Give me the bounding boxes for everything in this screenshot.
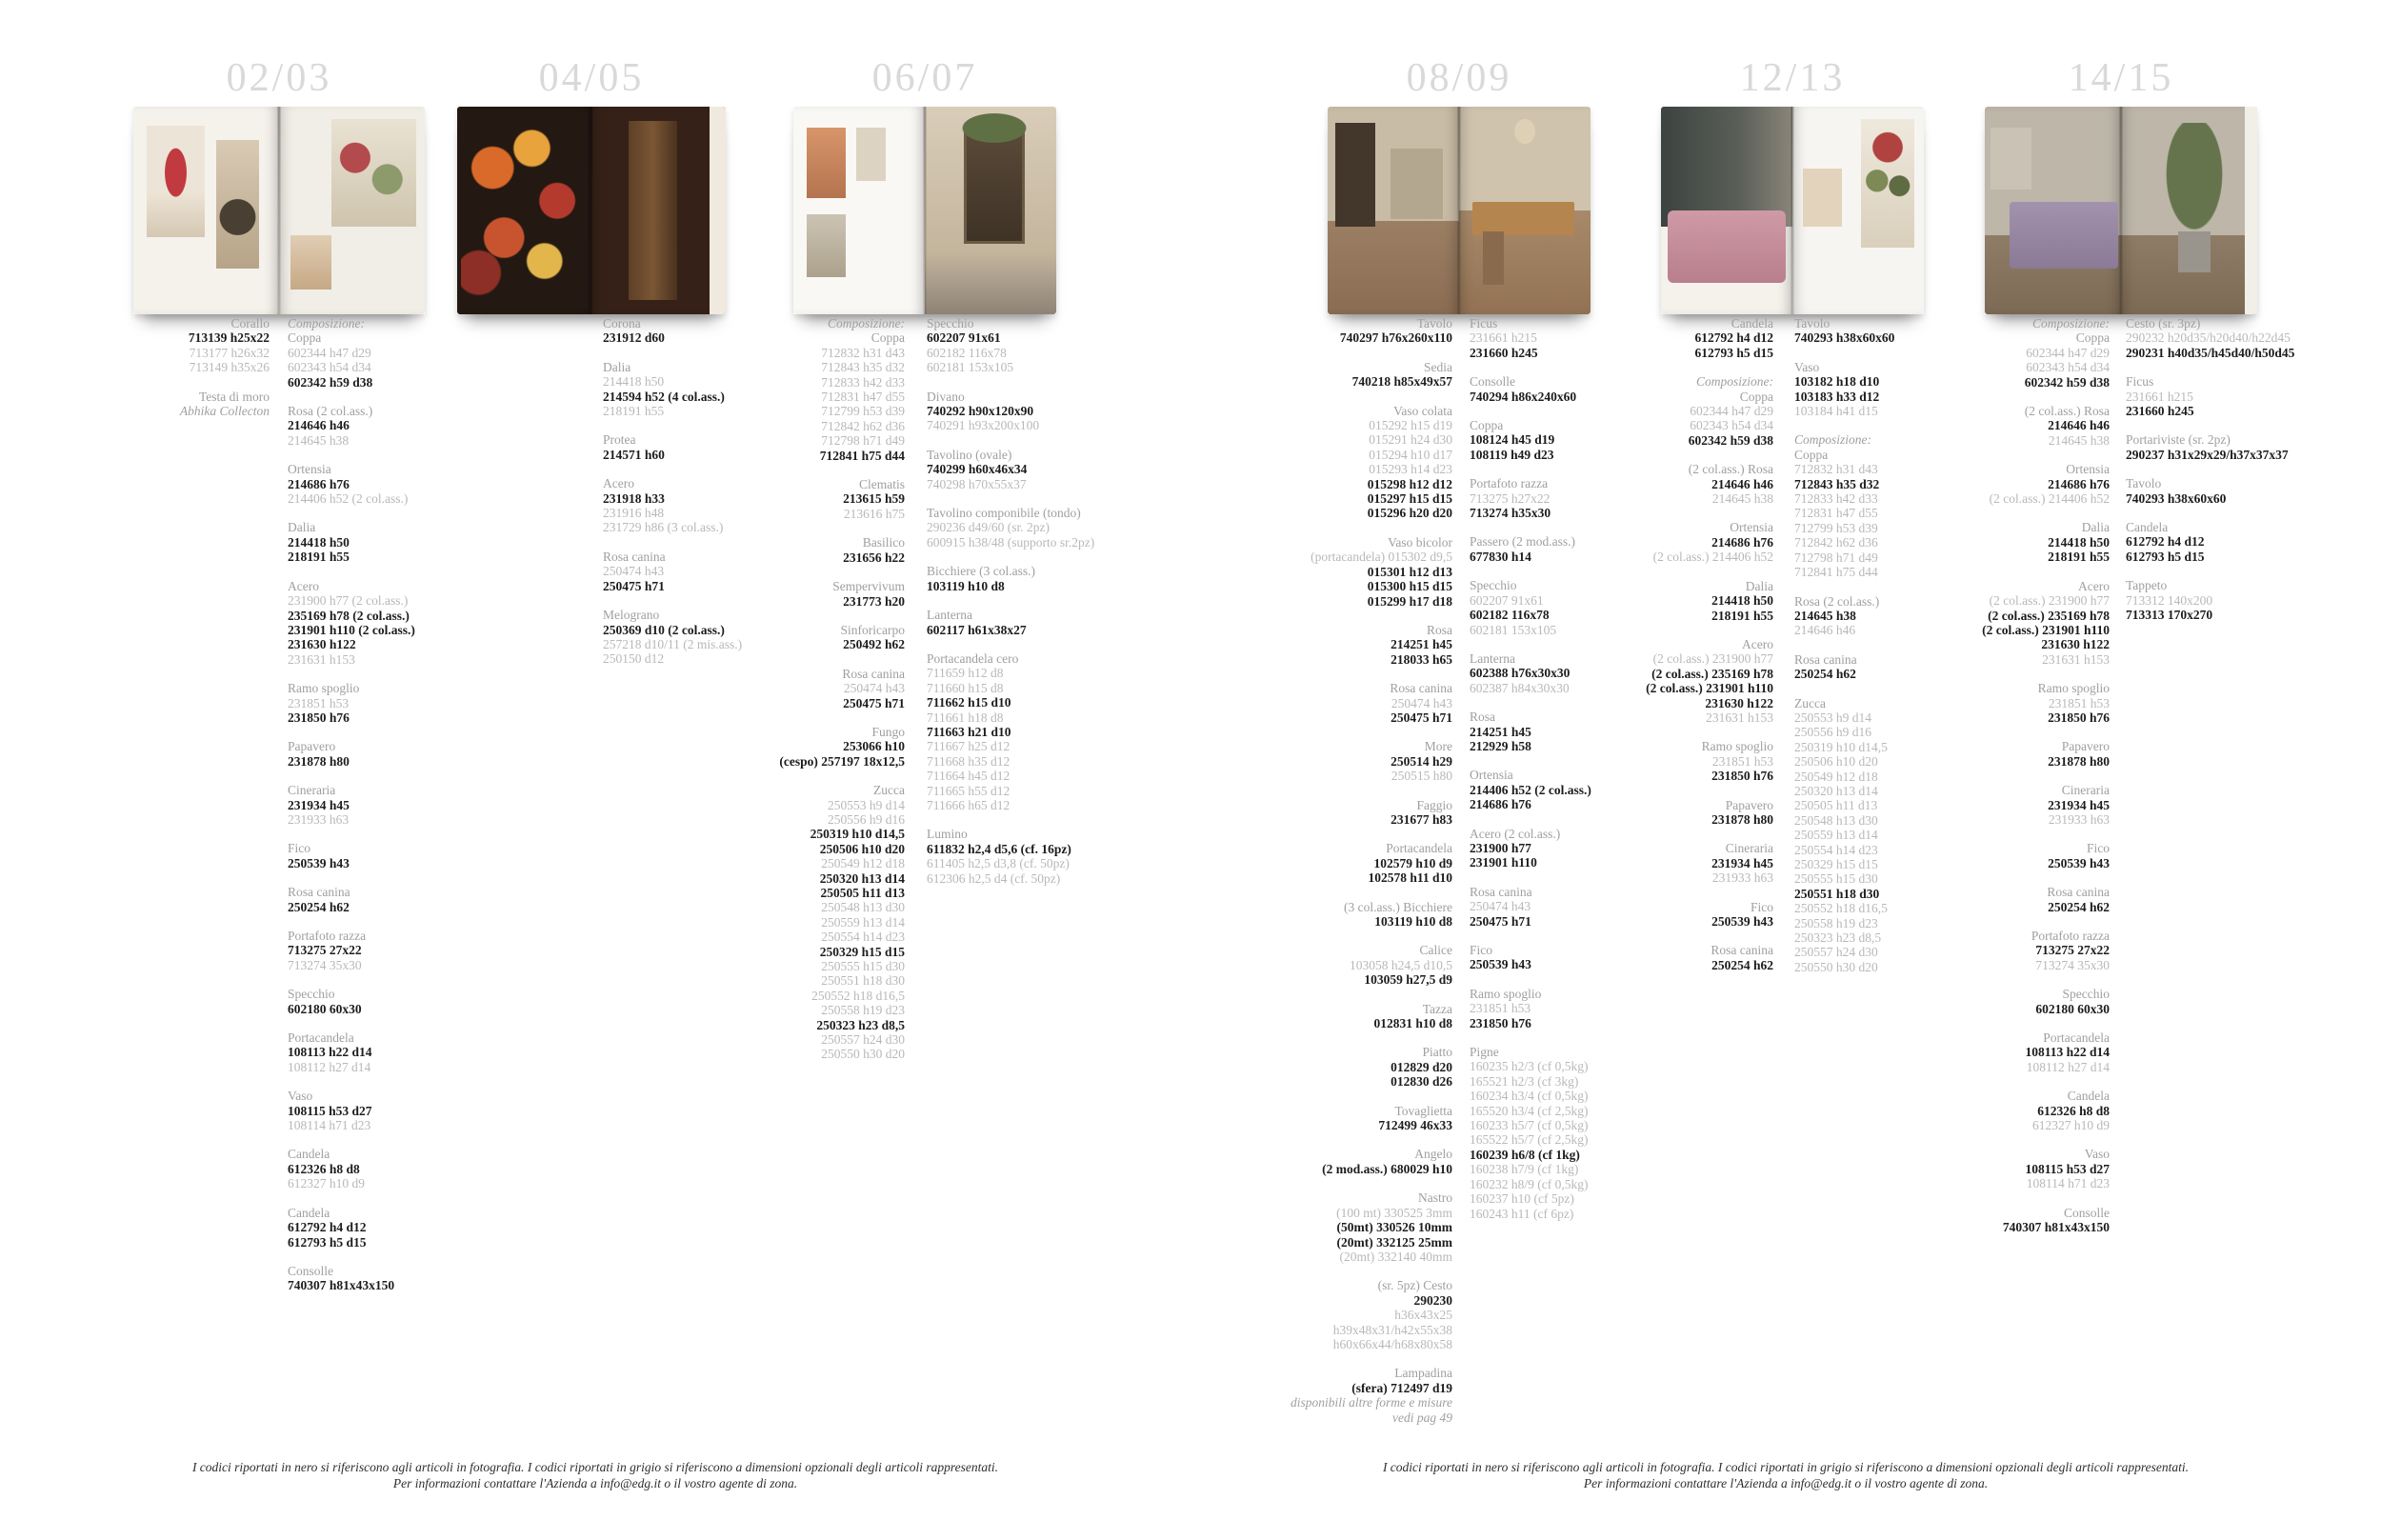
product-variant-line: 602344 h47 d29	[1932, 346, 2110, 360]
product-group: Dalia214418 h50218191 h55	[288, 520, 459, 564]
product-name-line: Fico	[1596, 900, 1773, 914]
product-variant-line: 711661 h18 d8	[927, 710, 1134, 725]
product-group: Sempervivum231773 h20	[724, 579, 905, 609]
product-variant-line: 250558 h19 d23	[724, 1003, 905, 1017]
product-code-line: 214686 h76	[1932, 477, 2110, 491]
product-code-line: 740292 h90x120x90	[927, 404, 1134, 418]
product-code-line: 250254 h62	[288, 900, 459, 914]
product-group: Consolle740307 h81x43x150	[288, 1264, 459, 1293]
product-name-line: Acero	[288, 579, 459, 593]
product-name-line: Composizione:	[1596, 374, 1773, 389]
product-code-line: 713313 170x270	[2126, 608, 2343, 622]
product-group: Divano740292 h90x120x90740291 h93x200x10…	[927, 390, 1134, 433]
thumbnail-photo	[807, 214, 846, 276]
product-variant-line: (2 col.ass.) 231900 h77	[1596, 651, 1773, 666]
product-group: Candela612326 h8 d8612327 h10 d9	[1932, 1089, 2110, 1132]
product-group: Lampadina(sfera) 712497 d19disponibili a…	[1274, 1366, 1452, 1425]
product-variant-line: 160235 h2/3 (cf 0,5kg)	[1470, 1059, 1668, 1073]
catalog-index-page: 02/03Corallo713139 h25x22713177 h26x3271…	[0, 0, 2381, 1540]
product-group: Papavero231878 h80	[288, 739, 459, 769]
product-variant-line: 712842 h62 d36	[724, 419, 905, 433]
product-name-line: Portacandela	[1274, 841, 1452, 855]
product-name-line: Calice	[1274, 943, 1452, 957]
product-variant-line: 250515 h80	[1274, 769, 1452, 783]
product-code-line: 740307 h81x43x150	[1932, 1220, 2110, 1234]
product-variant-line: 712832 h31 d43	[724, 346, 905, 360]
product-name-line: Specchio	[288, 987, 459, 1001]
product-code-line: 250329 h15 d15	[724, 945, 905, 959]
product-column: Corallo713139 h25x22713177 h26x32713149 …	[108, 316, 270, 432]
product-variant-line: 015292 h15 d19	[1274, 418, 1452, 432]
product-group: Ramo spoglio231851 h53231850 h76	[1932, 681, 2110, 725]
product-variant-line: 711665 h55 d12	[927, 784, 1134, 798]
product-name-line: Portafoto razza	[288, 929, 459, 943]
product-column: Cesto (sr. 3pz)290232 h20d35/h20d40/h22d…	[2126, 316, 2343, 637]
product-group: Vaso108115 h53 d27108114 h71 d23	[288, 1089, 459, 1132]
product-code-line: (20mt) 332125 25mm	[1274, 1235, 1452, 1250]
product-variant-line: 712843 h35 d32	[724, 360, 905, 374]
product-name-line: Dalia	[288, 520, 459, 534]
product-column: Candela612792 h4 d12612793 h5 d15Composi…	[1596, 316, 1773, 987]
product-variant-line: 602343 h54 d34	[1932, 360, 2110, 374]
product-name-line: Pigne	[1470, 1045, 1668, 1059]
product-variant-line: (portacandela) 015302 d9,5	[1274, 550, 1452, 564]
product-code-line: 290237 h31x29x29/h37x37x37	[2126, 448, 2343, 462]
product-variant-line: 612306 h2,5 d4 (cf. 50pz)	[927, 871, 1134, 886]
product-variant-line: 231933 h63	[1596, 870, 1773, 885]
product-group: Angelo(2 mod.ass.) 680029 h10	[1274, 1147, 1452, 1176]
product-group: Papavero231878 h80	[1932, 739, 2110, 769]
product-group: Rosa (2 col.ass.)214646 h46214645 h38	[288, 404, 459, 448]
product-code-line: 108115 h53 d27	[288, 1104, 459, 1118]
product-variant-line: 250550 h30 d20	[724, 1047, 905, 1061]
product-group: Calice103058 h24,5 d10,5103059 h27,5 d9	[1274, 943, 1452, 987]
product-group: Specchio602180 60x30	[288, 987, 459, 1016]
product-code-line: 103119 h10 d8	[927, 579, 1134, 593]
product-group: Lanterna602117 h61x38x27	[927, 608, 1134, 637]
product-name-line: Rosa canina	[1274, 681, 1452, 695]
product-group: Dalia214418 h50218191 h55	[1932, 520, 2110, 564]
product-code-line: 250539 h43	[1932, 856, 2110, 870]
product-column: Composizione:Coppa602344 h47 d29602343 h…	[288, 316, 459, 1308]
product-name-line: disponibili altre forme e misure	[1274, 1395, 1452, 1410]
product-code-line: 231677 h83	[1274, 812, 1452, 827]
product-name-line: Composizione:	[724, 316, 905, 330]
product-code-line: 250475 h71	[1274, 710, 1452, 725]
product-group: Ficus231661 h215231660 h245	[2126, 374, 2343, 418]
product-group: Tavolino (ovale)740299 h60x46x34740298 h…	[927, 448, 1134, 491]
product-code-line: 602117 h61x38x27	[927, 623, 1134, 637]
product-name-line: Ramo spoglio	[1470, 987, 1668, 1001]
product-name-line: Lampadina	[1274, 1366, 1452, 1380]
product-code-line: 231878 h80	[1932, 754, 2110, 769]
product-code-line: 214418 h50	[1596, 593, 1773, 608]
product-group: Clematis213615 h59213616 h75	[724, 477, 905, 521]
product-group: (2 col.ass.) Rosa214646 h46214645 h38	[1596, 462, 1773, 506]
product-group: Sinforicarpo250492 h62	[724, 623, 905, 652]
thumbnail-photo	[290, 235, 331, 290]
product-group: Rosa canina250254 h62	[1932, 885, 2110, 914]
product-code-line: 250514 h29	[1274, 754, 1452, 769]
product-group: Corallo713139 h25x22713177 h26x32713149 …	[108, 316, 270, 375]
product-code-line: (cespo) 257197 18x12,5	[724, 754, 905, 769]
product-group: Piatto012829 d20012830 d26	[1274, 1045, 1452, 1089]
product-code-line: 231850 h76	[1470, 1016, 1668, 1030]
thumbnail-photo	[2159, 123, 2230, 243]
product-group: Faggio231677 h83	[1274, 798, 1452, 828]
product-code-line: (2 col.ass.) 235169 h78	[1596, 667, 1773, 681]
product-name-line: Fungo	[724, 725, 905, 739]
product-variant-line: (100 mt) 330525 3mm	[1274, 1206, 1452, 1220]
product-name-line: Rosa canina	[1932, 885, 2110, 899]
thumbnail-photo	[1668, 210, 1786, 283]
product-name-line: Tovaglietta	[1274, 1104, 1452, 1118]
product-code-line: 290231 h40d35/h45d40/h50d45	[2126, 346, 2343, 360]
product-name-line: Rosa canina	[288, 885, 459, 899]
product-name-line: Vaso	[1932, 1147, 2110, 1161]
product-variant-line: 250559 h13 d14	[724, 915, 905, 930]
product-group: Rosa canina250474 h43250475 h71	[724, 667, 905, 710]
product-code-line: 015301 h12 d13	[1274, 565, 1452, 579]
product-code-line: 214646 h46	[288, 418, 459, 432]
thumbnail-photo	[461, 113, 588, 309]
product-code-line: 012831 h10 d8	[1274, 1016, 1452, 1030]
product-group: Candela612792 h4 d12612793 h5 d15	[1596, 316, 1773, 360]
product-group: Cineraria231934 h45231933 h63	[1932, 783, 2110, 827]
product-code-line: 103119 h10 d8	[1274, 914, 1452, 929]
product-group: (sr. 5pz) Cesto290230h36x43x25h39x48x31/…	[1274, 1278, 1452, 1351]
product-group: Candela612792 h4 d12612793 h5 d15	[2126, 520, 2343, 564]
product-group: Candela612326 h8 d8612327 h10 d9	[288, 1147, 459, 1190]
product-variant-line: 015294 h10 d17	[1274, 448, 1452, 462]
product-code-line: 231850 h76	[1932, 710, 2110, 725]
product-variant-line: 165521 h2/3 (cf 3kg)	[1470, 1074, 1668, 1089]
product-variant-line: 160238 h7/9 (cf 1kg)	[1470, 1162, 1668, 1176]
product-name-line: Portacandela	[288, 1030, 459, 1045]
product-code-line: (2 col.ass.) 235169 h78	[1932, 609, 2110, 623]
product-code-line: (2 col.ass.) 231901 h110	[1932, 623, 2110, 637]
product-name-line: Candela	[2126, 520, 2343, 534]
product-name-line: Acero	[1596, 637, 1773, 651]
product-code-line: 231934 h45	[1932, 798, 2110, 812]
spread-page-numbers: 02/03	[133, 55, 425, 101]
product-code-line: 231630 h122	[288, 637, 459, 651]
thumbnail-photo	[1391, 149, 1443, 219]
product-name-line: Acero	[1932, 579, 2110, 593]
product-name-line: Candela	[288, 1206, 459, 1220]
product-name-line: Consolle	[1932, 1206, 2110, 1220]
thumbnail-page	[1985, 107, 2121, 314]
product-group: Ortensia214686 h76(2 col.ass.) 214406 h5…	[1596, 520, 1773, 564]
product-variant-line: 231933 h63	[1932, 812, 2110, 827]
product-variant-line: 103058 h24,5 d10,5	[1274, 958, 1452, 972]
product-variant-line: 712833 h42 d33	[724, 375, 905, 390]
product-name-line: Consolle	[288, 1264, 459, 1278]
thumbnail-photo	[710, 107, 726, 314]
product-code-line: 711662 h15 d10	[927, 695, 1134, 710]
product-name-line: Candela	[288, 1147, 459, 1161]
spread-thumbnail	[457, 107, 726, 314]
product-code-line: 612792 h4 d12	[288, 1220, 459, 1234]
product-group: Ramo spoglio231851 h53231850 h76	[288, 681, 459, 725]
product-variant-line: 231851 h53	[288, 696, 459, 710]
thumbnail-photo	[1803, 169, 1842, 227]
product-name-line: Corallo	[108, 316, 270, 330]
product-code-line: 214418 h50	[288, 535, 459, 550]
product-name-line: Rosa canina	[724, 667, 905, 681]
product-group: Acero231900 h77 (2 col.ass.)235169 h78 (…	[288, 579, 459, 667]
product-name-line: Portariviste (sr. 2pz)	[2126, 432, 2343, 447]
product-variant-line: 250552 h18 d16,5	[724, 989, 905, 1003]
product-variant-line: 231631 h153	[1596, 710, 1773, 725]
product-group: (3 col.ass.) Bicchiere103119 h10 d8	[1274, 900, 1452, 930]
product-code-line: 108115 h53 d27	[1932, 1162, 2110, 1176]
product-code-line: 160239 h6/8 (cf 1kg)	[1470, 1148, 1668, 1162]
product-variant-line: 250549 h12 d18	[724, 856, 905, 870]
footer-contact: Per informazioni contattare l'Azienda a …	[1338, 1475, 2233, 1491]
footer-legend: I codici riportati in nero si riferiscon…	[148, 1459, 1043, 1475]
thumbnail-photo	[147, 126, 205, 238]
product-column: Tavolo740297 h76x260x110Sedia740218 h85x…	[1274, 316, 1452, 1439]
product-group: Rosa canina250474 h43250475 h71	[1274, 681, 1452, 725]
product-code-line: 214646 h46	[1932, 418, 2110, 432]
product-variant-line: 108114 h71 d23	[1932, 1176, 2110, 1190]
product-code-line: 713275 27x22	[288, 943, 459, 957]
product-name-line: Angelo	[1274, 1147, 1452, 1161]
product-variant-line: 250555 h15 d30	[724, 959, 905, 973]
product-group: Portacandela108113 h22 d14108112 h27 d14	[1932, 1030, 2110, 1074]
product-name-line: Composizione:	[1932, 316, 2110, 330]
product-group: Vaso colata015292 h15 d19015291 h24 d300…	[1274, 404, 1452, 521]
product-group: Vaso108115 h53 d27108114 h71 d23	[1932, 1147, 2110, 1190]
product-variant-line: 713274 35x30	[1932, 958, 2110, 972]
product-variant-line: 600915 h38/48 (supporto sr.2pz)	[927, 535, 1134, 550]
product-name-line: Specchio	[927, 316, 1134, 330]
product-code-line: 611832 h2,4 d5,6 (cf. 16pz)	[927, 842, 1134, 856]
product-code-line: 231934 h45	[288, 798, 459, 812]
product-name-line: Specchio	[1932, 987, 2110, 1001]
product-variant-line: (2 col.ass.) 231900 h77	[1932, 593, 2110, 608]
product-variant-line: 250551 h18 d30	[724, 973, 905, 988]
footer-contact: Per informazioni contattare l'Azienda a …	[148, 1475, 1043, 1491]
product-name-line: Portafoto razza	[1932, 929, 2110, 943]
product-name-line: Tavolo	[2126, 476, 2343, 490]
product-group: Acero(2 col.ass.) 231900 h77(2 col.ass.)…	[1932, 579, 2110, 667]
product-code-line: 740218 h85x49x57	[1274, 374, 1452, 389]
product-group: Consolle740307 h81x43x150	[1932, 1206, 2110, 1235]
product-variant-line: 165520 h3/4 (cf 2,5kg)	[1470, 1104, 1668, 1118]
product-group: Composizione:Coppa602344 h47 d29602343 h…	[1932, 316, 2110, 390]
thumbnail-photo	[1861, 119, 1915, 248]
product-variant-line: 250548 h13 d30	[724, 900, 905, 914]
product-group: Composizione:Coppa602344 h47 d29602343 h…	[288, 316, 459, 390]
product-code-line: 713139 h25x22	[108, 330, 270, 345]
product-name-line: Sedia	[1274, 360, 1452, 374]
product-variant-line: 108114 h71 d23	[288, 1118, 459, 1132]
product-group: Cesto (sr. 3pz)290232 h20d35/h20d40/h22d…	[2126, 316, 2343, 360]
product-variant-line: 612327 h10 d9	[1932, 1118, 2110, 1132]
product-code-line: 231630 h122	[1932, 637, 2110, 651]
product-group: More250514 h29250515 h80	[1274, 739, 1452, 783]
product-group: Rosa canina250254 h62	[288, 885, 459, 914]
product-group: Tavolino componibile (tondo)290236 d49/6…	[927, 506, 1134, 550]
product-code-line: 214418 h50	[1932, 535, 2110, 550]
product-group: Portariviste (sr. 2pz)290237 h31x29x29/h…	[2126, 432, 2343, 462]
product-name-line: Ficus	[2126, 374, 2343, 389]
product-code-line: 602342 h59 d38	[1932, 375, 2110, 390]
product-group: Tavolo740297 h76x260x110	[1274, 316, 1452, 346]
footer-legend: I codici riportati in nero si riferiscon…	[1338, 1459, 2233, 1475]
product-name-line: Rosa	[1274, 623, 1452, 637]
thumbnail-photo	[1991, 128, 2031, 190]
product-variant-line: (2 col.ass.) 214406 h52	[1932, 491, 2110, 506]
product-name-line: Sempervivum	[724, 579, 905, 593]
product-variant-line: 015293 h14 d23	[1274, 462, 1452, 476]
product-variant-line: 250557 h24 d30	[724, 1032, 905, 1047]
product-variant-line: 231661 h215	[2126, 390, 2343, 404]
product-variant-line: (2 col.ass.) 214406 h52	[1596, 550, 1773, 564]
spread-page-numbers: 12/13	[1661, 55, 1924, 101]
product-code-line: 231656 h22	[724, 550, 905, 565]
product-code-line: 214686 h76	[288, 477, 459, 491]
product-code-line: 250505 h11 d13	[724, 886, 905, 900]
product-code-line: 015298 h12 d12	[1274, 477, 1452, 491]
product-code-line: 740307 h81x43x150	[288, 1278, 459, 1292]
product-code-line: 250323 h23 d8,5	[724, 1018, 905, 1032]
product-variant-line: 160233 h5/7 (cf 0,5kg)	[1470, 1118, 1668, 1132]
product-variant-line: 602181 153x105	[927, 360, 1134, 374]
thumbnail-page	[457, 107, 591, 314]
product-variant-line: 602344 h47 d29	[1596, 404, 1773, 418]
product-code-line: 102578 h11 d10	[1274, 870, 1452, 885]
product-group: Zucca250553 h9 d14250556 h9 d16250319 h1…	[724, 783, 905, 1062]
product-code-line: 012829 d20	[1274, 1060, 1452, 1074]
product-variant-line: 160243 h11 (cf 6pz)	[1470, 1207, 1668, 1221]
product-group: Papavero231878 h80	[1596, 798, 1773, 828]
spread-thumbnail	[133, 107, 425, 314]
product-name-line: Coppa	[288, 330, 459, 345]
product-group: Ortensia214686 h76214406 h52 (2 col.ass.…	[288, 462, 459, 506]
product-code-line: 250475 h71	[724, 696, 905, 710]
product-group: Fico250539 h43	[1596, 900, 1773, 930]
product-group: Sedia740218 h85x49x57	[1274, 360, 1452, 390]
product-variant-line: h60x66x44/h68x80x58	[1274, 1337, 1452, 1351]
product-name-line: Vaso	[288, 1089, 459, 1103]
product-code-line: (sfera) 712497 d19	[1274, 1381, 1452, 1395]
product-code-line: (2 col.ass.) 231901 h110	[1596, 681, 1773, 695]
product-name-line: Cineraria	[1932, 783, 2110, 797]
product-name-line: Portacandela	[1932, 1030, 2110, 1045]
product-name-line: Tazza	[1274, 1002, 1452, 1016]
product-code-line: 602207 91x61	[927, 330, 1134, 345]
product-code-line: 250492 h62	[724, 637, 905, 651]
product-group: Tovaglietta712499 46x33	[1274, 1104, 1452, 1133]
product-group: Composizione:Coppa712832 h31 d43712843 h…	[724, 316, 905, 463]
product-variant-line: 231631 h153	[288, 652, 459, 667]
product-code-line: 214686 h76	[1596, 535, 1773, 550]
product-name-line: Ortensia	[1932, 462, 2110, 476]
product-name-line: Bicchiere (3 col.ass.)	[927, 564, 1134, 578]
footer-note-left: I codici riportati in nero si riferiscon…	[148, 1459, 1043, 1491]
thumbnail-page	[2121, 107, 2257, 314]
product-variant-line: 711668 h35 d12	[927, 754, 1134, 769]
product-variant-line: 612327 h10 d9	[288, 1176, 459, 1190]
product-code-line: 231773 h20	[724, 594, 905, 609]
product-variant-line: 160232 h8/9 (cf 0,5kg)	[1470, 1177, 1668, 1191]
product-code-line: 602342 h59 d38	[288, 375, 459, 390]
product-group: Specchio602207 91x61602182 116x78602181 …	[927, 316, 1134, 375]
product-code-line: 231850 h76	[1596, 769, 1773, 783]
product-name-line: Ramo spoglio	[1596, 739, 1773, 753]
product-code-line: 253066 h10	[724, 739, 905, 753]
product-group: Rosa214251 h45218033 h65	[1274, 623, 1452, 667]
product-code-line: (50mt) 330526 10mm	[1274, 1220, 1452, 1234]
product-variant-line: 602343 h54 d34	[1596, 418, 1773, 432]
product-name-line: Zucca	[724, 783, 905, 797]
product-code-line: 235169 h78 (2 col.ass.)	[288, 609, 459, 623]
product-variant-line: 290232 h20d35/h20d40/h22d45	[2126, 330, 2343, 345]
product-code-line: 250539 h43	[288, 856, 459, 870]
product-variant-line: 602344 h47 d29	[288, 346, 459, 360]
product-variant-line: h36x43x25	[1274, 1308, 1452, 1322]
product-variant-line: 712799 h53 d39	[724, 404, 905, 418]
product-code-line: 108113 h22 d14	[1932, 1045, 2110, 1059]
product-variant-line: 214645 h38	[288, 433, 459, 448]
product-code-line: 015297 h15 d15	[1274, 491, 1452, 506]
product-code-line: 602180 60x30	[288, 1002, 459, 1016]
product-name-line: Cineraria	[1596, 841, 1773, 855]
product-name-line: (3 col.ass.) Bicchiere	[1274, 900, 1452, 914]
thumbnail-photo	[2178, 231, 2211, 273]
product-code-line: 213615 h59	[724, 491, 905, 506]
product-name-line: Candela	[1596, 316, 1773, 330]
product-variant-line: 165522 h5/7 (cf 2,5kg)	[1470, 1132, 1668, 1147]
product-variant-line: 214645 h38	[1932, 433, 2110, 448]
product-code-line: 250319 h10 d14,5	[724, 827, 905, 841]
product-group: Portafoto razza713275 27x22713274 35x30	[1932, 929, 2110, 972]
product-variant-line: 108112 h27 d14	[1932, 1060, 2110, 1074]
product-code-line: 218033 h65	[1274, 652, 1452, 667]
product-variant-line: 711660 h15 d8	[927, 681, 1134, 695]
product-variant-line: 231900 h77 (2 col.ass.)	[288, 593, 459, 608]
product-variant-line: 250553 h9 d14	[724, 798, 905, 812]
product-code-line: 713275 27x22	[1932, 943, 2110, 957]
product-name-line: Tavolo	[1274, 316, 1452, 330]
product-code-line: 612792 h4 d12	[1596, 330, 1773, 345]
product-code-line: 015300 h15 d15	[1274, 579, 1452, 593]
product-code-line: 612793 h5 d15	[2126, 550, 2343, 564]
thumbnail-page	[925, 107, 1056, 314]
thumbnail-page	[1459, 107, 1591, 314]
product-code-line: 711663 h21 d10	[927, 725, 1134, 739]
product-name-line: Papavero	[1596, 798, 1773, 812]
product-code-line: (2 mod.ass.) 680029 h10	[1274, 1162, 1452, 1176]
product-code-line: 290230	[1274, 1293, 1452, 1308]
product-variant-line: 712831 h47 d55	[724, 390, 905, 404]
product-variant-line: 250474 h43	[724, 681, 905, 695]
product-group: Pigne160235 h2/3 (cf 0,5kg)165521 h2/3 (…	[1470, 1045, 1668, 1221]
product-group: Dalia214418 h50218191 h55	[1596, 579, 1773, 623]
product-code-line: 250506 h10 d20	[724, 842, 905, 856]
product-code-line: 712499 46x33	[1274, 1118, 1452, 1132]
product-variant-line: 713274 35x30	[288, 958, 459, 972]
product-group: Testa di moroAbhika Collecton	[108, 390, 270, 419]
product-group: Cineraria231934 h45231933 h63	[288, 783, 459, 827]
product-group: Tavolo740293 h38x60x60	[2126, 476, 2343, 506]
spread-thumbnail	[1985, 107, 2257, 314]
product-name-line: Cineraria	[288, 783, 459, 797]
product-name-line: Vaso bicolor	[1274, 535, 1452, 550]
